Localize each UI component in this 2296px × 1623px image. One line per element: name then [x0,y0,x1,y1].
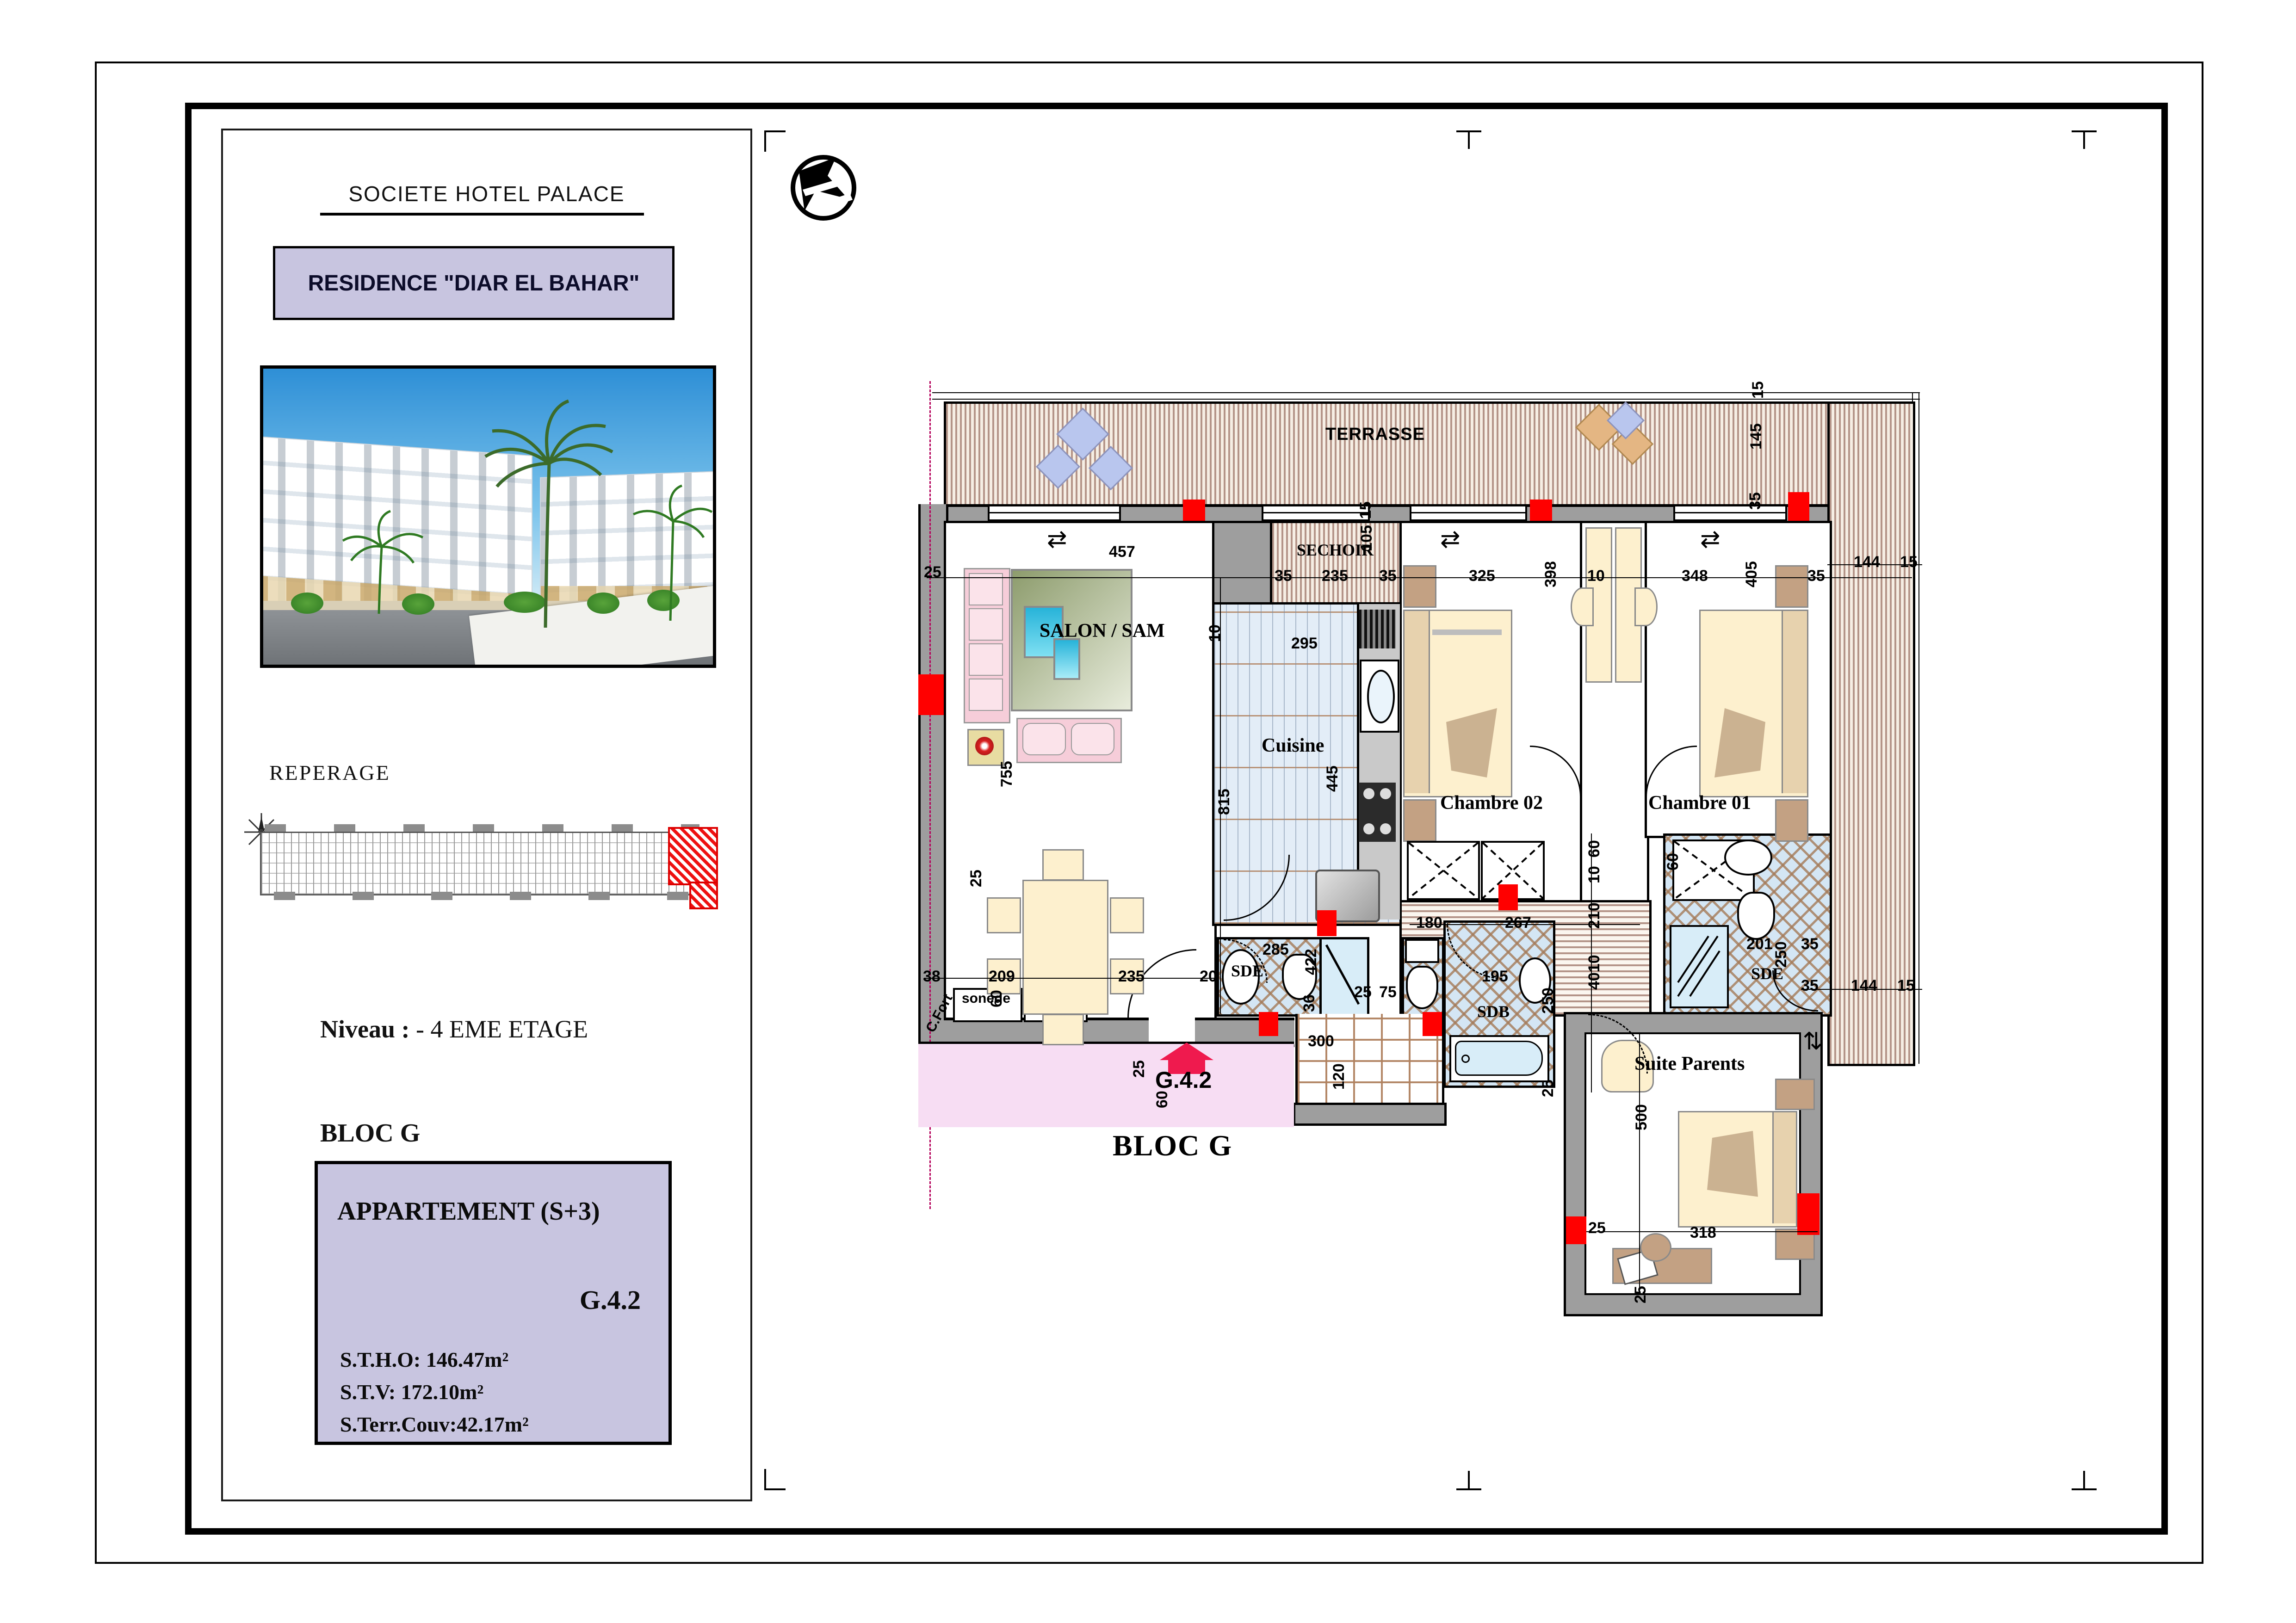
crop-mark [1468,130,1470,149]
reperage-title: REPERAGE [269,760,390,785]
dimension-label: 35 [1801,935,1819,953]
dimension-label: 60 [988,990,1006,1007]
crop-mark [764,1469,766,1490]
dimension-label: 195 [1482,968,1508,986]
reperage-highlight-apartment [668,827,718,885]
building-photo [260,365,716,668]
reperage-highlight-apartment [689,882,718,909]
dimension-label: 35 [1379,567,1397,585]
dimension-label: 180 [1416,914,1442,932]
dimension-label: 250 [1539,987,1557,1014]
crop-mark [2083,130,2085,149]
dimension-label: 25 [1539,1080,1557,1097]
crop-mark [2083,1471,2085,1489]
dimension-label: 35 [1801,977,1819,995]
dimension-label: 60 [1585,840,1603,858]
apartment-code: G.4.2 [580,1284,641,1315]
dimension-label: 35 [1807,567,1825,585]
dimension-label: 398 [1542,561,1560,587]
dimension-label: 445 [1324,765,1342,792]
dimension-label: 38 [923,968,941,986]
apartment-info-box: APPARTEMENT (S+3) G.4.2 S.T.H.O: 146.47m… [315,1161,672,1445]
dimension-label: 60 [1664,853,1682,870]
sheet-canvas: SOCIETE HOTEL PALACE RESIDENCE "DIAR EL … [0,0,2296,1623]
dimension-label: 35 [1275,567,1292,585]
dimension-label: 318 [1690,1224,1716,1242]
crop-mark [764,130,786,132]
dimension-label: 15 [1749,381,1767,399]
dimension-label: 285 [1262,941,1289,959]
dimension-label: 300 [1308,1032,1334,1050]
dimension-label: 25 [1354,983,1372,1001]
residence-title: RESIDENCE "DIAR EL BAHAR" [308,271,640,296]
surface-tv: S.T.V: 172.10m² [340,1380,483,1404]
dimension-label: 105 [1358,525,1376,551]
company-underline [320,213,644,216]
dimension-label: 144 [1851,977,1877,995]
dimension-label: 457 [1109,543,1135,561]
dimension-label: 325 [1469,567,1495,585]
dimension-label: 500 [1633,1104,1651,1130]
photo-palm-trees [263,369,713,665]
floor-plan: ⇄ ⇄ ⇄ ⇄ TERRASSESECHOIRSALON / SAMCuisin… [918,389,1927,1341]
dimension-label: 25 [1632,1286,1650,1303]
info-panel: SOCIETE HOTEL PALACE RESIDENCE "DIAR EL … [221,129,752,1501]
dimension-label: 235 [1322,567,1348,585]
dimension-label: 25 [1588,1219,1606,1237]
dimension-label: 250 [1772,941,1790,968]
dimension-label: 10 [1206,624,1224,642]
dimension-label: 145 [1747,423,1765,450]
company-title: SOCIETE HOTEL PALACE [223,181,750,206]
dimension-label: 405 [1743,561,1761,587]
dimension-label: 348 [1682,567,1708,585]
dimension-label: 25 [967,870,985,887]
dimension-label: 36 [1300,994,1318,1012]
dimension-label: 815 [1215,789,1233,815]
dimension-label: 75 [1379,983,1397,1001]
dimension-label: 210 [1585,902,1603,929]
dimension-label: 15 [1357,501,1375,519]
reperage-roofline [274,892,690,900]
dimension-label: 15 [1897,977,1915,995]
dimension-label: 144 [1854,553,1880,571]
level-value: - 4 EME ETAGE [416,1015,588,1043]
reperage-strip [246,814,727,911]
dimension-label: 25 [1130,1060,1148,1078]
crop-mark [764,130,766,152]
dimension-label: 235 [1118,968,1145,986]
apartment-type: APPARTEMENT (S+3) [337,1197,600,1226]
dimension-label: 10 [1585,866,1603,883]
residence-title-box: RESIDENCE "DIAR EL BAHAR" [273,246,675,320]
dimension-label: 60 [1153,1091,1171,1108]
surface-terr: S.Terr.Couv:42.17m² [340,1412,529,1437]
dimension-label: 209 [989,968,1015,986]
dimension-label: 267 [1505,914,1531,932]
dimension-label: 10 [1587,567,1605,585]
dimension-label: 25 [924,563,941,581]
dimension-label: 295 [1291,635,1318,653]
reperage-plan-band [260,832,716,895]
crop-mark [764,1488,786,1490]
dimension-label: 20 [1200,968,1217,986]
dimension-label: 201 [1746,935,1773,953]
level-label: Niveau : [320,1015,409,1043]
dimension-label: 35 [1746,492,1764,510]
dimension-label: 15 [1900,553,1918,571]
dimension-label: 422 [1302,949,1320,975]
dimension-label: 4010 [1585,955,1603,990]
crop-mark [1468,1471,1470,1489]
dimension-label: 755 [998,761,1016,787]
dimension-label: 120 [1330,1063,1348,1090]
level-caption: Niveau : - 4 EME ETAGE [320,1015,588,1043]
dimension-label-layer: 2545710295445815755352353510515325398103… [918,389,1927,1341]
north-compass-icon [784,147,863,228]
bloc-caption: BLOC G [320,1118,420,1148]
surface-tho: S.T.H.O: 146.47m² [340,1347,508,1372]
